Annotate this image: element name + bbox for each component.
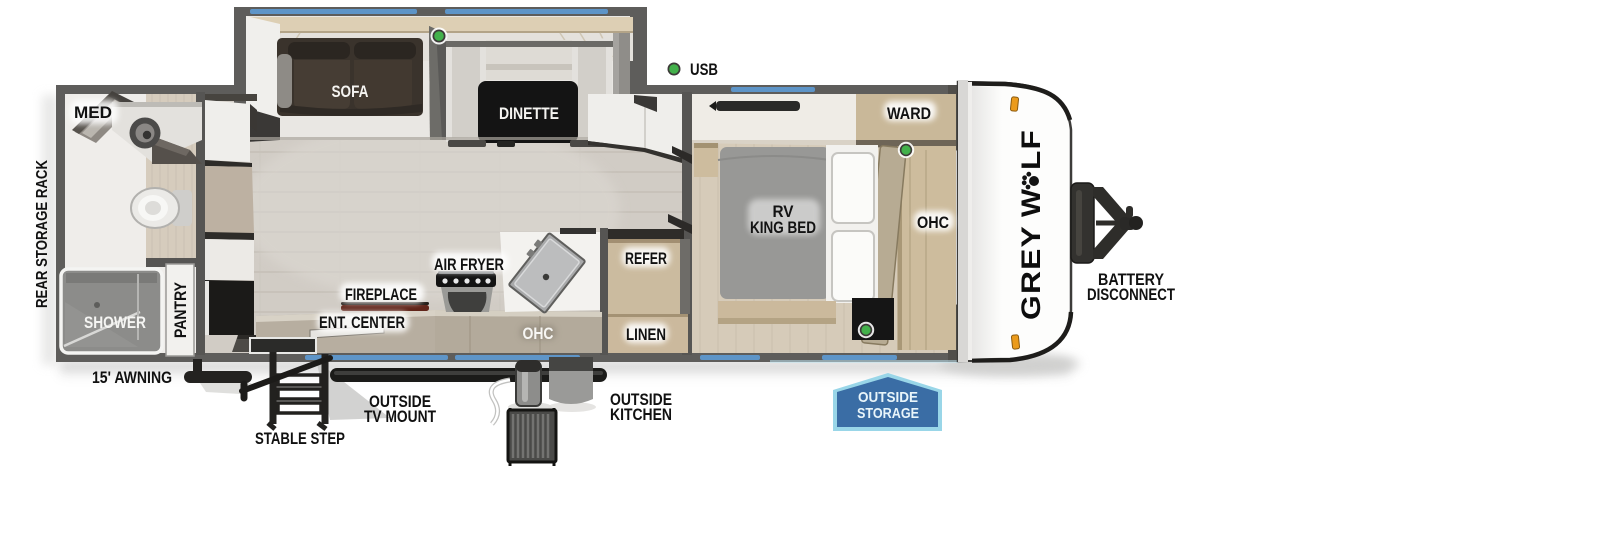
svg-text:OHC: OHC	[917, 214, 949, 232]
svg-text:DISCONNECT: DISCONNECT	[1087, 286, 1175, 304]
svg-text:TV MOUNT: TV MOUNT	[364, 408, 436, 426]
svg-text:LF: LF	[1016, 129, 1046, 170]
svg-text:AIR FRYER: AIR FRYER	[434, 256, 504, 274]
svg-text:DINETTE: DINETTE	[499, 105, 559, 123]
svg-text:OUTSIDE: OUTSIDE	[858, 389, 918, 406]
svg-text:USB: USB	[690, 61, 718, 79]
svg-text:W: W	[1016, 188, 1046, 217]
svg-text:SHOWER: SHOWER	[84, 314, 146, 332]
svg-text:STORAGE: STORAGE	[857, 405, 919, 422]
svg-text:REAR STORAGE RACK: REAR STORAGE RACK	[34, 159, 51, 308]
svg-text:STABLE STEP: STABLE STEP	[255, 430, 345, 448]
svg-text:WARD: WARD	[887, 105, 931, 123]
svg-text:FIREPLACE: FIREPLACE	[345, 286, 417, 304]
svg-text:OHC: OHC	[523, 325, 554, 343]
svg-text:GREY: GREY	[1016, 225, 1046, 320]
svg-text:MED: MED	[74, 104, 112, 122]
svg-text:KING BED: KING BED	[750, 219, 816, 237]
svg-text:ENT. CENTER: ENT. CENTER	[319, 314, 405, 332]
svg-text:REFER: REFER	[625, 250, 667, 268]
svg-text:SOFA: SOFA	[332, 83, 369, 101]
svg-text:LINEN: LINEN	[626, 326, 666, 344]
svg-text:15' AWNING: 15' AWNING	[92, 369, 172, 387]
svg-text:PANTRY: PANTRY	[172, 282, 190, 338]
svg-text:KITCHEN: KITCHEN	[610, 406, 672, 424]
